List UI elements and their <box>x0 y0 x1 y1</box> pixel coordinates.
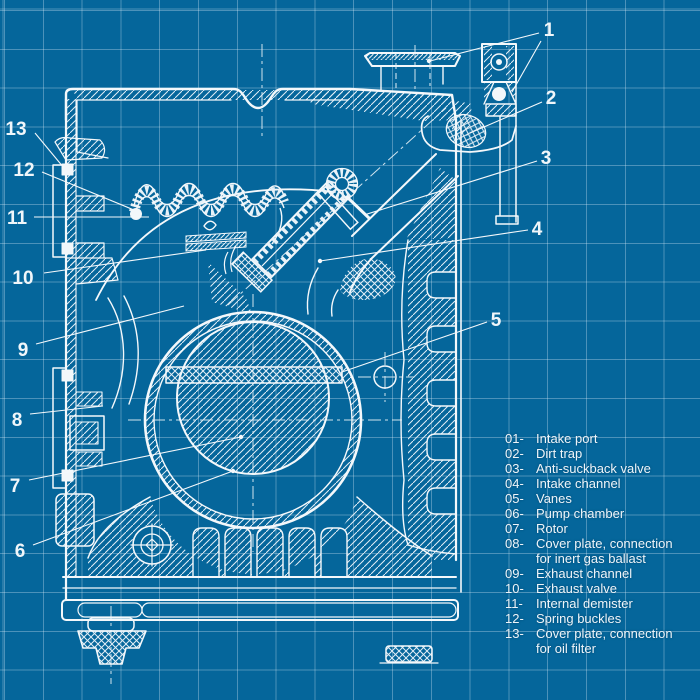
legend-item-13-line2: for oil filter <box>536 641 695 656</box>
legend-label: Rotor <box>536 521 568 536</box>
valve-ball <box>492 87 506 101</box>
trap-block-hatch <box>486 104 516 116</box>
rubber-foot <box>78 631 146 664</box>
vane-slot <box>166 367 342 383</box>
legend-label: Vanes <box>536 491 572 506</box>
flange-bar-hatch-4 <box>76 452 102 466</box>
flange-bar-hatch-1 <box>76 196 104 211</box>
legend-num: 09- <box>505 566 536 581</box>
legend-item-13: 13-Cover plate, connection <box>505 626 695 641</box>
legend-item-11: 11-Internal demister <box>505 596 695 611</box>
legend-label: Intake channel <box>536 476 621 491</box>
legend-item-12: 12-Spring buckles <box>505 611 695 626</box>
callout-4: 4 <box>532 219 543 240</box>
legend-item-08-line2: for inert gas ballast <box>536 551 695 566</box>
callout-11: 11 <box>7 208 28 229</box>
callout-numbers: 1 2 3 4 5 6 7 8 9 10 11 12 13 <box>5 20 556 562</box>
exhaust-channel-curves <box>108 296 138 408</box>
legend-num: 01- <box>505 431 536 446</box>
legend-item-06: 06-Pump chamber <box>505 506 695 521</box>
legend-item-03: 03-Anti-suckback valve <box>505 461 695 476</box>
legend-label: Dirt trap <box>536 446 582 461</box>
legend-num: 07- <box>505 521 536 536</box>
rotor-circle <box>177 322 329 474</box>
hatched-sections <box>55 46 516 577</box>
exhaust-valve-group <box>186 221 246 251</box>
trap-port-dot <box>496 59 502 65</box>
callout-1: 1 <box>544 20 555 41</box>
valve-stem-line <box>262 188 338 266</box>
legend-num: 02- <box>505 446 536 461</box>
legend-label: Spring buckles <box>536 611 621 626</box>
legend-label: Exhaust channel <box>536 566 632 581</box>
legend-label: Pump chamber <box>536 506 624 521</box>
gas-ballast-plug-hatch <box>76 422 98 444</box>
base-inner-box-left <box>78 603 142 617</box>
legend-label: Exhaust valve <box>536 581 617 596</box>
legend-item-07: 07-Rotor <box>505 521 695 536</box>
legend-num: 12- <box>505 611 536 626</box>
callout-2: 2 <box>546 88 557 109</box>
legend-item-09: 09-Exhaust channel <box>505 566 695 581</box>
legend-num: 13- <box>505 626 536 641</box>
legend-num: 03- <box>505 461 536 476</box>
legend-label: Intake port <box>536 431 597 446</box>
legend-item-01: 01-Intake port <box>505 431 695 446</box>
leader-9 <box>36 306 184 344</box>
callout-13: 13 <box>5 119 26 140</box>
lower-casing-hatch <box>88 497 432 577</box>
legend-item-04: 04-Intake channel <box>505 476 695 491</box>
base-inner-box-right <box>142 603 456 617</box>
valve-pin <box>346 196 370 219</box>
callout-6: 6 <box>15 541 26 562</box>
valve-seat-arcs <box>224 246 236 274</box>
callout-3: 3 <box>541 148 552 169</box>
intake-pocket-crosshatch <box>340 258 396 300</box>
legend-item-08: 08-Cover plate, connection <box>505 536 695 551</box>
channel-side-hatch <box>406 168 456 240</box>
legend-num: 05- <box>505 491 536 506</box>
callout-8: 8 <box>12 410 23 431</box>
legend-num: 06- <box>505 506 536 521</box>
spring-buckle-clip <box>204 221 216 230</box>
legend-num: 08- <box>505 536 536 551</box>
legend-item-10: 10-Exhaust valve <box>505 581 695 596</box>
legend-label: Cover plate, connection <box>536 536 673 551</box>
left-casing-block-hatch <box>66 258 118 284</box>
callout-12: 12 <box>13 160 34 181</box>
legend-label: Anti-suckback valve <box>536 461 651 476</box>
legend-num: 10- <box>505 581 536 596</box>
intake-neck-lines <box>381 66 443 90</box>
cover-bolt-bottom <box>62 243 73 254</box>
blueprint-page: { "colors": { "background": "#05669b", "… <box>0 0 700 700</box>
callout-5: 5 <box>491 310 502 331</box>
cooling-fins-hatch <box>408 240 456 560</box>
fin-wall-inner-line <box>401 240 408 545</box>
flange-bar-hatch-2 <box>76 243 104 258</box>
callout-10: 10 <box>12 268 33 289</box>
left-lug-hatch <box>56 494 94 546</box>
cover-top-lobe-hatch <box>55 138 105 161</box>
spring-buckle-ball <box>130 208 142 220</box>
valve-spring-curl <box>331 173 353 195</box>
legend-label: Internal demister <box>536 596 633 611</box>
cover-bolt-top <box>62 164 73 175</box>
callout-9: 9 <box>18 340 29 361</box>
ballast-bolt-top <box>62 370 73 381</box>
legend-label: Cover plate, connection <box>536 626 673 641</box>
legend-num: 04- <box>505 476 536 491</box>
valve-curl-inner <box>336 178 349 191</box>
flange-bar-hatch-3 <box>76 392 102 406</box>
callout-7: 7 <box>10 476 21 497</box>
legend-item-05: 05-Vanes <box>505 491 695 506</box>
right-foot <box>386 646 432 662</box>
legend-num: 11- <box>505 596 536 611</box>
legend-item-02: 02-Dirt trap <box>505 446 695 461</box>
parts-legend: 01-Intake port 02-Dirt trap 03-Anti-suck… <box>505 431 695 656</box>
chamber-inlet-lines <box>307 268 338 316</box>
